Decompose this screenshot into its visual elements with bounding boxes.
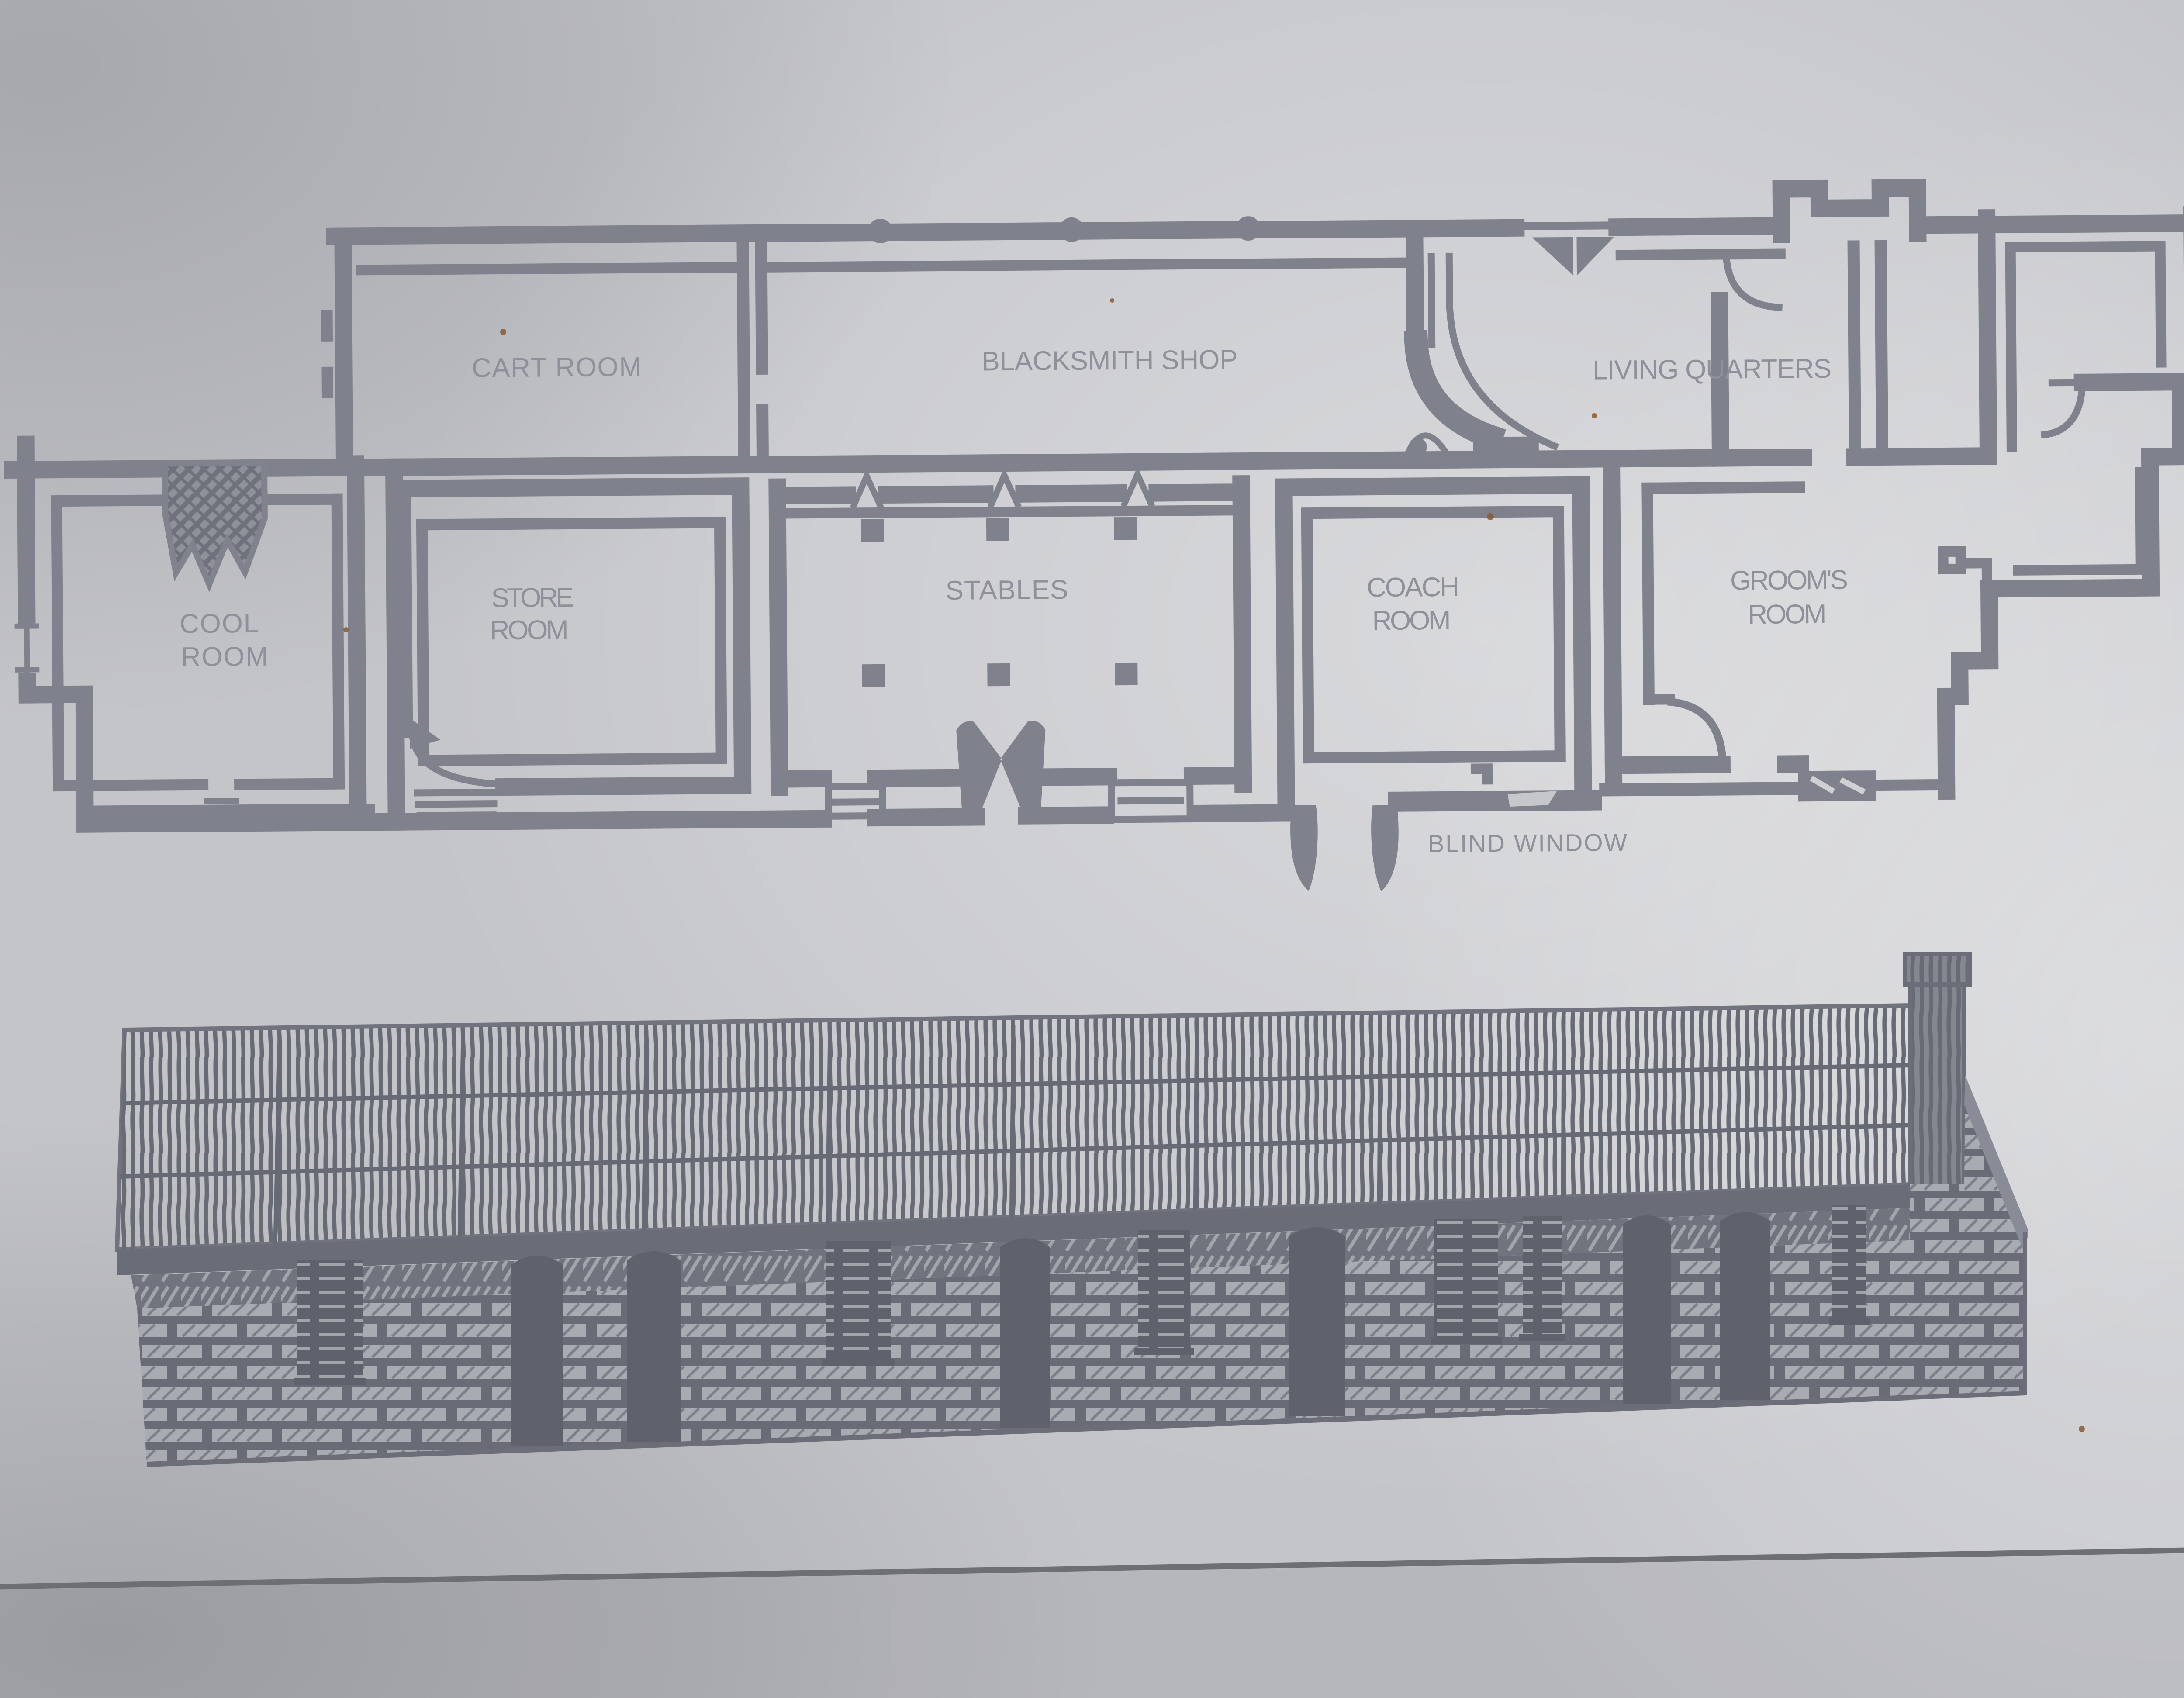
svg-text:BLACKSMITH SHOP: BLACKSMITH SHOP [981,345,1237,376]
svg-text:COOL: COOL [180,608,259,639]
svg-text:ROOM: ROOM [1748,599,1826,630]
svg-text:ROOM: ROOM [490,615,568,645]
svg-text:GROOM'S: GROOM'S [1730,565,1848,596]
svg-text:ROOM: ROOM [181,642,268,672]
svg-text:ROOM: ROOM [1372,605,1451,636]
svg-text:LIVING QUARTERS: LIVING QUARTERS [1593,354,1832,386]
svg-text:COACH: COACH [1367,572,1459,603]
svg-text:STABLES: STABLES [945,575,1068,606]
svg-text:CART ROOM: CART ROOM [472,352,642,383]
svg-text:STORE: STORE [491,583,574,613]
svg-text:BLIND WINDOW: BLIND WINDOW [1428,828,1628,857]
